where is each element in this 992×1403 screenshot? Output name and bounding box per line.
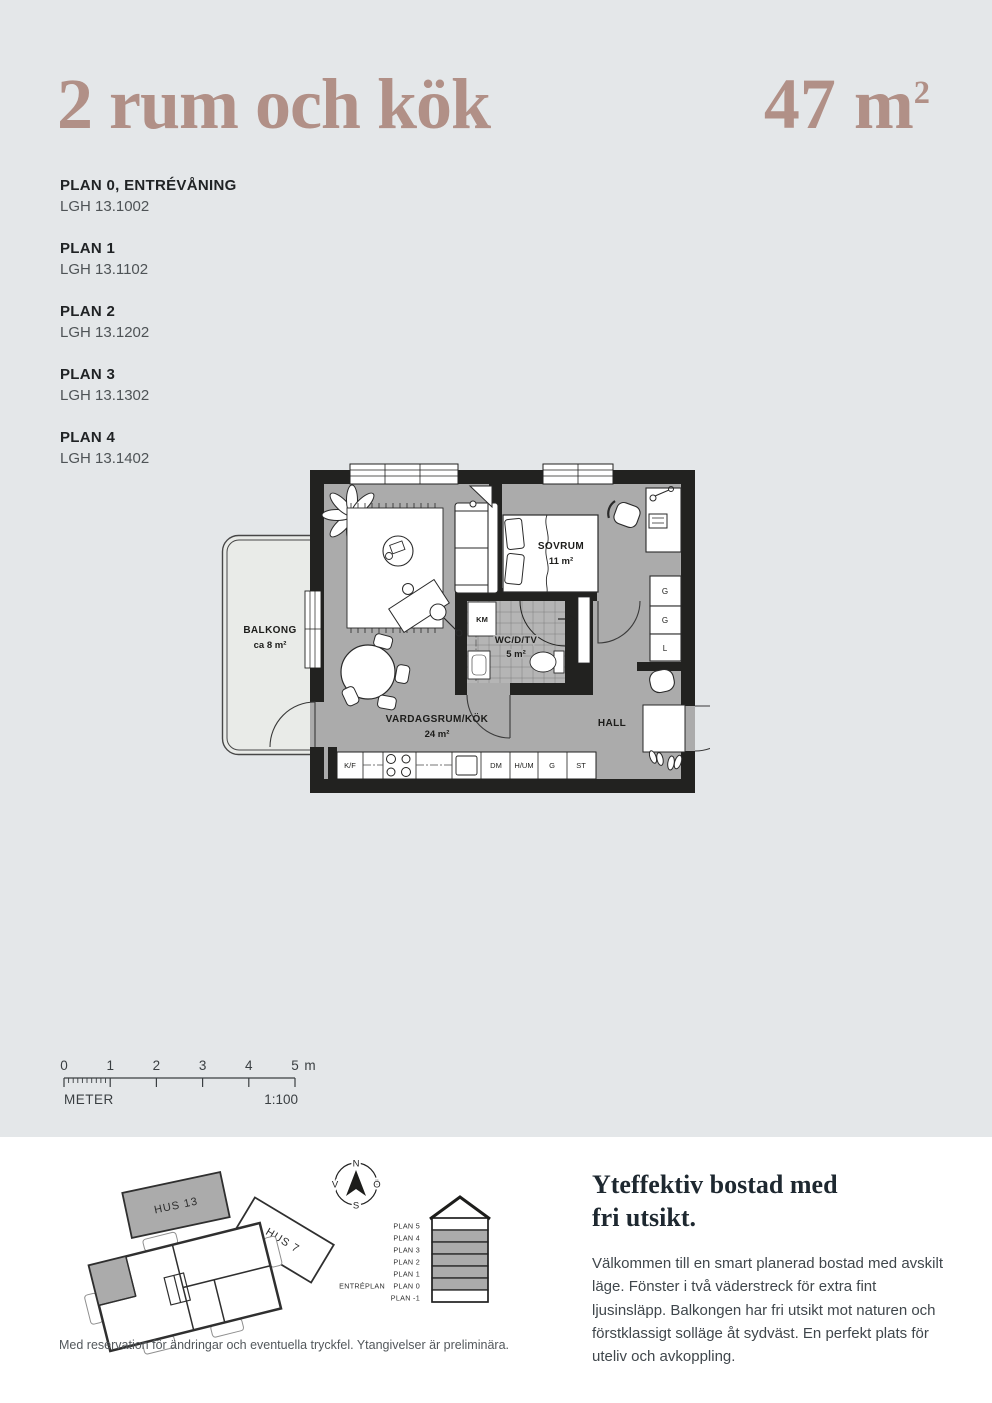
section-floor-label: PLAN 0 <box>393 1282 420 1291</box>
hall-label: HALL <box>598 718 626 729</box>
closet-label: G <box>662 587 668 596</box>
plan-apartment-number: LGH 13.1302 <box>60 387 237 404</box>
livingroom-label: VARDAGSRUM/KÖK <box>386 712 489 725</box>
scale-bar: 0 1 2 3 4 5 m METER 1:100 <box>57 1056 357 1111</box>
plan-list-item: PLAN 1 LGH 13.1102 <box>60 240 237 278</box>
plan-apartment-number: LGH 13.1102 <box>60 261 237 278</box>
section-floor-label: PLAN -1 <box>391 1294 420 1303</box>
plan-list-item: PLAN 3 LGH 13.1302 <box>60 366 237 404</box>
scale-tick-label: 5 <box>291 1058 299 1073</box>
sliding-door-panel <box>578 597 590 663</box>
entrance-door <box>695 706 710 751</box>
info-body: Välkommen till en smart planerad bostad … <box>592 1252 944 1368</box>
section-floor-bands <box>432 1218 488 1302</box>
scale-tick-label: 4 <box>245 1058 253 1073</box>
compass-east: Ö <box>373 1180 380 1191</box>
scale-tick-label: 2 <box>153 1058 161 1073</box>
scale-tick-label: 1 <box>106 1058 114 1073</box>
area-superscript: 2 <box>914 75 930 111</box>
section-floor-label: PLAN 4 <box>393 1234 420 1243</box>
scale-tick-label: 0 <box>60 1058 68 1073</box>
info-heading: Yteffektiv bostad medfri utsikt. <box>592 1168 948 1234</box>
compass-west: V <box>332 1180 339 1191</box>
compass-south: S <box>353 1201 359 1212</box>
info-heading-line1: Yteffektiv bostad med <box>592 1168 948 1201</box>
plan-list-item: PLAN 2 LGH 13.1202 <box>60 303 237 341</box>
section-floor-label: PLAN 1 <box>393 1270 420 1279</box>
plan-name: PLAN 2 <box>60 303 237 320</box>
kitchen-counter <box>337 752 596 779</box>
plan-list-item: PLAN 0, ENTRÉVÅNING LGH 13.1002 <box>60 177 237 215</box>
brochure-page: 2 rum och kök 47 m2 PLAN 0, ENTRÉVÅNING … <box>0 0 992 1403</box>
bedroom-area: 11 m² <box>549 556 573 567</box>
site-plan: HUS 13 HUS 7 <box>74 1172 333 1365</box>
washing-machine-label: KM <box>476 615 488 624</box>
bedroom-desk <box>646 487 681 553</box>
section-floor-label: PLAN 3 <box>393 1246 420 1255</box>
section-roof <box>430 1197 490 1219</box>
livingroom-area: 24 m² <box>425 729 450 740</box>
section-floor-label: PLAN 2 <box>393 1258 420 1267</box>
kitchen-unit-label: K/F <box>344 761 356 770</box>
double-bed <box>503 515 598 592</box>
scale-ratio-label: 1:100 <box>264 1092 298 1107</box>
bathroom-label: WC/D/TV <box>495 635 538 646</box>
bedroom-label: SOVRUM <box>538 541 584 552</box>
balcony-label: BALKONG <box>243 625 296 636</box>
balcony-area: ca 8 m² <box>254 640 287 651</box>
livingroom-window <box>350 464 458 484</box>
floorplan-drawing: G G L K/F DM H/UM G ST <box>210 445 710 805</box>
compass-north: N <box>353 1159 360 1170</box>
scale-ruler <box>64 1078 295 1087</box>
building-hus13: HUS 13 <box>122 1172 229 1238</box>
doormat <box>643 705 685 752</box>
closet-label: G <box>662 616 668 625</box>
sofa <box>455 503 498 593</box>
area-value: 47 m <box>764 64 914 144</box>
plan-apartment-number: LGH 13.1202 <box>60 324 237 341</box>
floorplan-sheet: 2 rum och kök 47 m2 PLAN 0, ENTRÉVÅNING … <box>0 0 992 1137</box>
location-graphics: HUS 13 HUS 7 <box>55 1145 520 1365</box>
page-title: 2 rum och kök <box>57 68 490 140</box>
section-entry-label: ENTRÉPLAN <box>339 1282 385 1291</box>
scale-tick-label: 3 <box>199 1058 207 1073</box>
scale-unit: m <box>304 1058 315 1073</box>
plan-name: PLAN 1 <box>60 240 237 257</box>
meter-label: METER <box>64 1092 114 1107</box>
building-section-diagram: PLAN 5 PLAN 4 PLAN 3 PLAN 2 PLAN 1 PLAN … <box>339 1197 490 1303</box>
balcony-door-opening <box>310 702 324 747</box>
toilet <box>530 651 564 673</box>
plan-name: PLAN 3 <box>60 366 237 383</box>
washbasin <box>468 651 490 679</box>
bedroom-window <box>543 464 613 484</box>
kitchen-unit-label: DM <box>490 761 502 770</box>
disclaimer-text: Med reservation för ändringar och eventu… <box>59 1338 509 1352</box>
bathroom-area: 5 m² <box>506 649 526 660</box>
section-floor-label: PLAN 5 <box>393 1222 420 1231</box>
plan-apartment-number: LGH 13.1002 <box>60 198 237 215</box>
info-heading-line2: fri utsikt. <box>592 1201 948 1234</box>
plan-name: PLAN 0, ENTRÉVÅNING <box>60 177 237 194</box>
area-label: 47 m2 <box>764 68 930 140</box>
balcony-window <box>305 591 321 668</box>
plan-name: PLAN 4 <box>60 429 237 446</box>
kitchen-unit-label: ST <box>576 761 586 770</box>
vacuum-robot <box>383 536 413 566</box>
compass-icon: N Ö S V <box>332 1159 381 1212</box>
info-block: Yteffektiv bostad medfri utsikt. Välkomm… <box>592 1168 948 1368</box>
closet-label: L <box>663 644 668 653</box>
kitchen-unit-label: H/UM <box>514 761 533 770</box>
kitchen-unit-label: G <box>549 761 555 770</box>
